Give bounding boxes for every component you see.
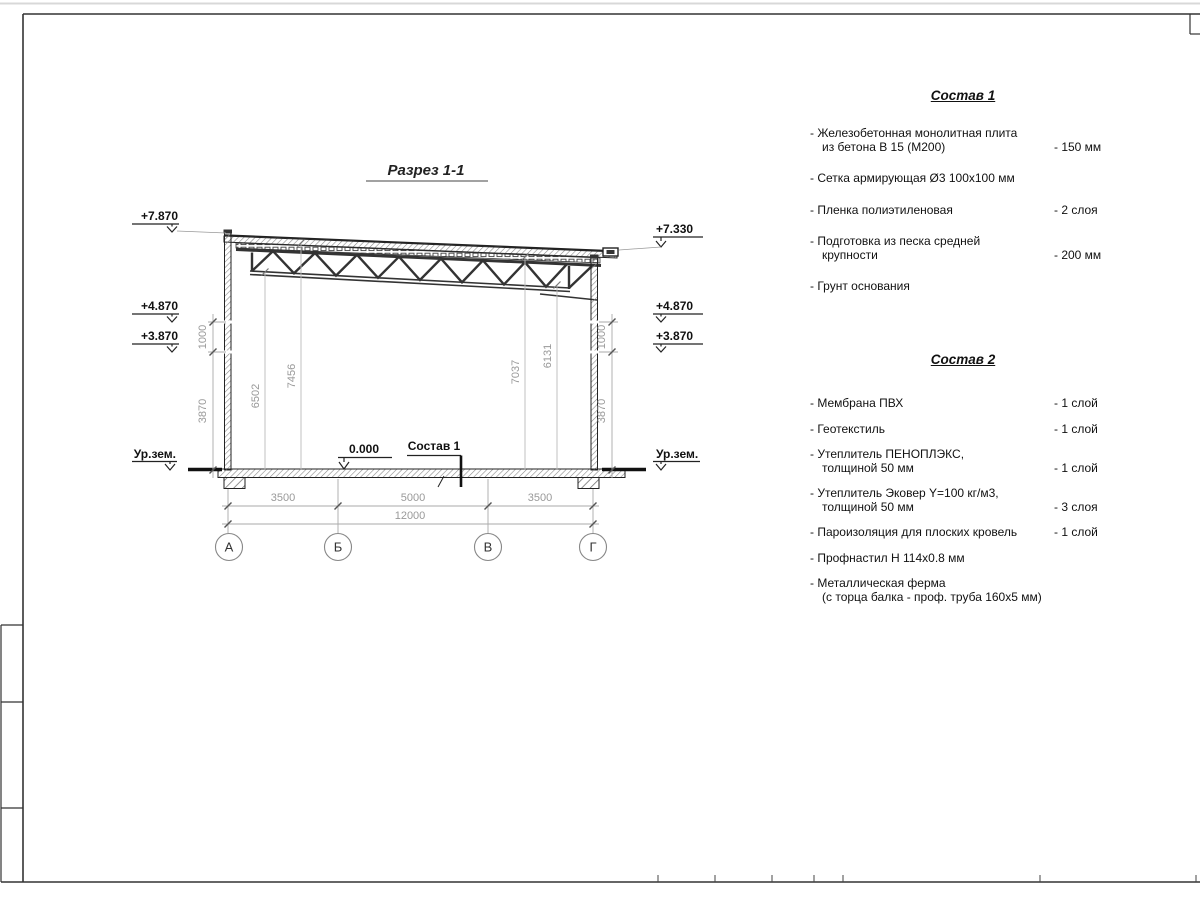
- item-qty: - 1 слой: [1054, 397, 1116, 411]
- elev-right-ground: Ур.зем.: [653, 447, 700, 470]
- dim-label: 12000: [395, 510, 426, 522]
- zero-level-text: 0.000: [349, 442, 379, 456]
- list-item: - Утеплитель ПЕНОПЛЭКС, толщиной 50 мм -…: [810, 448, 1116, 475]
- dim-label: 3870: [596, 399, 608, 423]
- section-title-text: Разрез 1-1: [387, 162, 464, 179]
- item-qty: - 1 слой: [1054, 526, 1116, 540]
- elev-text: +4.870: [141, 299, 178, 313]
- item-name: - Геотекстиль: [810, 423, 1054, 437]
- foundation-right: [578, 478, 599, 489]
- list-item: - Сетка армирующая Ø3 100х100 мм: [810, 172, 1116, 186]
- elev-left-4870: +4.870: [132, 299, 179, 322]
- axis-bubbles: А Б В Г: [216, 534, 607, 561]
- list-item: - Пленка полиэтиленовая - 2 слоя: [810, 204, 1116, 218]
- axis-label-g: Г: [589, 540, 596, 555]
- sostav1-leader: Состав 1: [407, 439, 461, 487]
- axis-label-b: Б: [334, 540, 343, 555]
- item-name: - Пленка полиэтиленовая: [810, 204, 1054, 218]
- elev-text: +7.330: [656, 222, 693, 236]
- elev-left-7870: +7.870: [132, 209, 226, 233]
- title-block-ticks: [658, 875, 1196, 882]
- elev-text: +3.870: [656, 329, 693, 343]
- floor-slab: [188, 469, 646, 489]
- dim-label: 7456: [286, 364, 298, 388]
- dim-label: 3500: [271, 492, 295, 504]
- foundation-left: [224, 478, 245, 489]
- dim-label: 6131: [542, 344, 554, 368]
- axis-label-v: В: [484, 540, 493, 555]
- list-item: - Металлическая ферма (с торца балка - п…: [810, 577, 1116, 604]
- building-section: 0.000 Состав 1: [188, 230, 646, 489]
- list-item: - Железобетонная монолитная плита из бет…: [810, 127, 1116, 154]
- item-name: - Металлическая ферма (с торца балка - п…: [810, 577, 1054, 604]
- dim-label: 1000: [596, 325, 608, 349]
- item-name: - Пароизоляция для плоских кровель: [810, 526, 1054, 540]
- list-item: - Геотекстиль - 1 слой: [810, 423, 1116, 437]
- sostav2-title: Состав 2: [810, 352, 1116, 367]
- elev-text: Ур.зем.: [656, 447, 698, 461]
- frame-corner-box: [1190, 14, 1200, 34]
- sostav1-title: Состав 1: [810, 88, 1116, 103]
- list-item: - Грунт основания: [810, 280, 1116, 294]
- list-item: - Профнастил Н 114х0.8 мм: [810, 552, 1116, 566]
- sostav2-list: Состав 2 - Мембрана ПВХ - 1 слой - Геоте…: [810, 352, 1116, 616]
- dim-label: 3870: [197, 399, 209, 423]
- item-name: - Профнастил Н 114х0.8 мм: [810, 552, 1054, 566]
- list-item: - Мембрана ПВХ - 1 слой: [810, 397, 1116, 411]
- dim-label: 5000: [401, 492, 425, 504]
- frame-left-boxes: [1, 625, 23, 882]
- right-wall: [590, 255, 599, 471]
- elev-left-ground: Ур.зем.: [132, 447, 177, 470]
- dim-bottom-chains: 3500 5000 3500 12000: [222, 479, 599, 533]
- item-qty: - 200 мм: [1054, 249, 1116, 263]
- dimensions: 1000 3870 1000 3870 6502 7456 7037: [197, 240, 618, 561]
- item-name: - Сетка армирующая Ø3 100х100 мм: [810, 172, 1054, 186]
- elev-text: +4.870: [656, 299, 693, 313]
- axis-label-a: А: [225, 540, 234, 555]
- dim-label: 3500: [528, 492, 552, 504]
- elev-left-3870: +3.870: [132, 329, 179, 352]
- dim-label: 6502: [250, 384, 262, 408]
- list-item: - Пароизоляция для плоских кровель - 1 с…: [810, 526, 1116, 540]
- dim-label: 1000: [197, 325, 209, 349]
- section-title: Разрез 1-1: [366, 162, 488, 181]
- item-name: - Утеплитель Эковер Y=100 кг/м3, толщино…: [810, 487, 1054, 514]
- item-name: - Железобетонная монолитная плита из бет…: [810, 127, 1054, 154]
- item-qty: - 1 слой: [1054, 423, 1116, 437]
- item-qty: - 2 слоя: [1054, 204, 1116, 218]
- sostav1-list: Состав 1 - Железобетонная монолитная пли…: [810, 88, 1116, 312]
- zero-level-mark: 0.000: [338, 442, 392, 469]
- dim-label: 7037: [510, 360, 522, 384]
- item-name: - Грунт основания: [810, 280, 1054, 294]
- item-name: - Подготовка из песка средней крупности: [810, 235, 1054, 262]
- dim-right-chain: 1000 3870: [596, 314, 618, 478]
- elev-right-3870: +3.870: [653, 329, 703, 352]
- item-name: - Утеплитель ПЕНОПЛЭКС, толщиной 50 мм: [810, 448, 1054, 475]
- item-name: - Мембрана ПВХ: [810, 397, 1054, 411]
- item-qty: - 150 мм: [1054, 141, 1116, 155]
- item-qty: - 1 слой: [1054, 462, 1116, 476]
- elev-text: +7.870: [141, 209, 178, 223]
- elev-text: +3.870: [141, 329, 178, 343]
- sostav1-leader-text: Состав 1: [408, 439, 461, 453]
- left-wall: [224, 230, 233, 471]
- elev-right-7330: +7.330: [619, 222, 703, 250]
- item-qty: - 3 слоя: [1054, 501, 1116, 515]
- list-item: - Утеплитель Эковер Y=100 кг/м3, толщино…: [810, 487, 1116, 514]
- elev-right-4870: +4.870: [653, 299, 703, 322]
- list-item: - Подготовка из песка средней крупности …: [810, 235, 1116, 262]
- elev-text: Ур.зем.: [134, 447, 176, 461]
- dim-left-chain: 1000 3870: [197, 314, 226, 478]
